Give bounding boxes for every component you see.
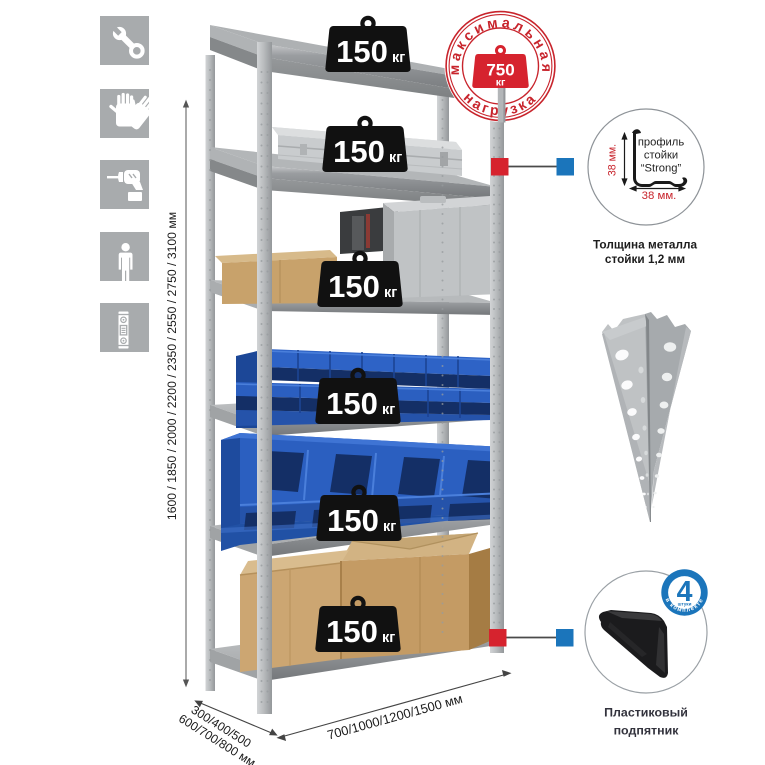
svg-text:кг: кг [496,77,506,89]
svg-text:Пластиковый: Пластиковый [604,706,688,720]
svg-text:150: 150 [328,269,380,304]
svg-text:подпятник: подпятник [614,724,680,738]
svg-text:кг: кг [392,50,405,66]
svg-text:150: 150 [336,34,388,69]
svg-text:150: 150 [326,386,378,421]
svg-text:стойки: стойки [644,150,678,162]
svg-text:кг: кг [389,150,402,166]
svg-text:1600 / 1850 / 2000 / 2200 / 23: 1600 / 1850 / 2000 / 2200 / 2350 / 2550 … [165,212,179,520]
svg-text:кг: кг [382,402,395,418]
svg-text:150: 150 [326,614,378,649]
svg-text:кг: кг [382,630,395,646]
svg-text:стойки 1,2 мм: стойки 1,2 мм [605,252,685,266]
svg-text:кг: кг [384,285,397,301]
svg-text:150: 150 [333,134,385,169]
svg-text:38 мм.: 38 мм. [642,190,677,202]
svg-text:штуки: штуки [678,602,692,607]
svg-text:кг: кг [383,519,396,535]
svg-text:“Strong”: “Strong” [641,163,682,175]
svg-text:150: 150 [327,503,379,538]
svg-text:38 мм.: 38 мм. [607,144,619,176]
svg-text:700/1000/1200/1500 мм: 700/1000/1200/1500 мм [326,691,465,743]
svg-text:профиль: профиль [638,137,684,149]
svg-text:Толщина металла: Толщина металла [593,238,697,252]
